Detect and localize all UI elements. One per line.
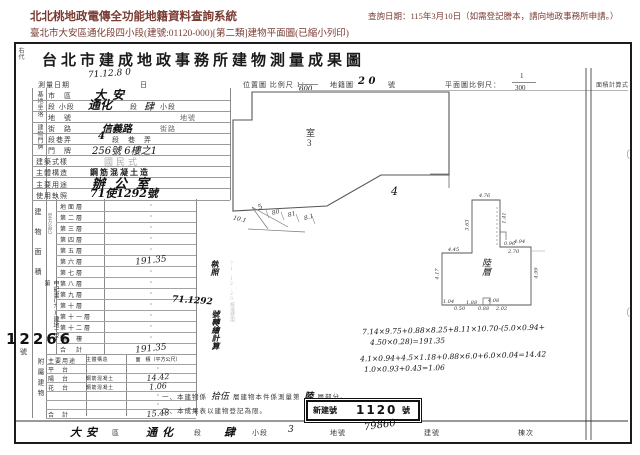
note-1-prefix: 一、本建物係 [162,394,207,401]
note-1-handwritten-floors: 拾伍 [211,392,229,402]
sketch-dim: 1.88 [466,300,477,306]
sketch-dim: 2.70 [508,249,519,255]
margin-paren-mark: （ [620,146,630,161]
footer-unit-label: 棟次 [518,428,534,438]
sketch-dim: 4.94 [514,239,525,245]
formula-column-separator [586,68,591,440]
footer-subsection-value: 肆 [224,424,235,440]
new-building-number-label: 新建號 [313,405,337,416]
sketch-dim: 3.63 [465,219,471,230]
footer-section-value: 通化 [146,424,178,440]
room-number: 3 [307,138,312,148]
sketch-dim: 1.04 [443,299,454,305]
footer-parcel-value: 3 [288,425,294,435]
new-building-number-unit: 號 [402,405,410,416]
exec-note-top: 執照 [210,260,221,294]
note-2: 二、本成果表以建物登記為限。 [162,405,267,415]
note-1-middle: 層建物本件係測量第 [233,394,301,401]
footer-district-label: 區 [112,428,120,438]
new-building-number-stamp: 新建號 1120 號 [306,400,420,421]
footer-building-label: 建號 [424,428,440,438]
sketch-dim: 0.88 [478,306,489,312]
sketch-dim: 4.08 [488,298,499,304]
floor-tag-vertical: 陸層 [479,258,492,288]
sketch-dim: 4.45 [448,247,459,253]
sketch-dim: 0.50 [454,306,465,312]
main-plan-outline [233,92,449,211]
exec-note-bottom: 號轉繪計算 [211,310,222,370]
sketch-dim: 2.02 [496,306,507,312]
sketch-dim: 4.76 [479,193,490,199]
sketch-dim: 1.41 [502,212,508,223]
sketch-dim: 4.99 [534,267,540,278]
plan-tick-right [430,174,449,188]
footer-section-label: 段 [194,428,202,438]
new-building-number-value: 1120 [356,403,397,417]
footer-parcel-label: 地號 [330,428,346,438]
sketch-dim: 4.17 [435,268,441,279]
footer-subsection-label: 小段 [252,428,268,438]
exec-note-faint: 71.12.20核准使用 [228,262,235,342]
footer-district-value: 大安 [70,424,102,440]
plan-mark-4: 4 [391,185,398,198]
margin-paren-mark: （ [620,304,630,319]
